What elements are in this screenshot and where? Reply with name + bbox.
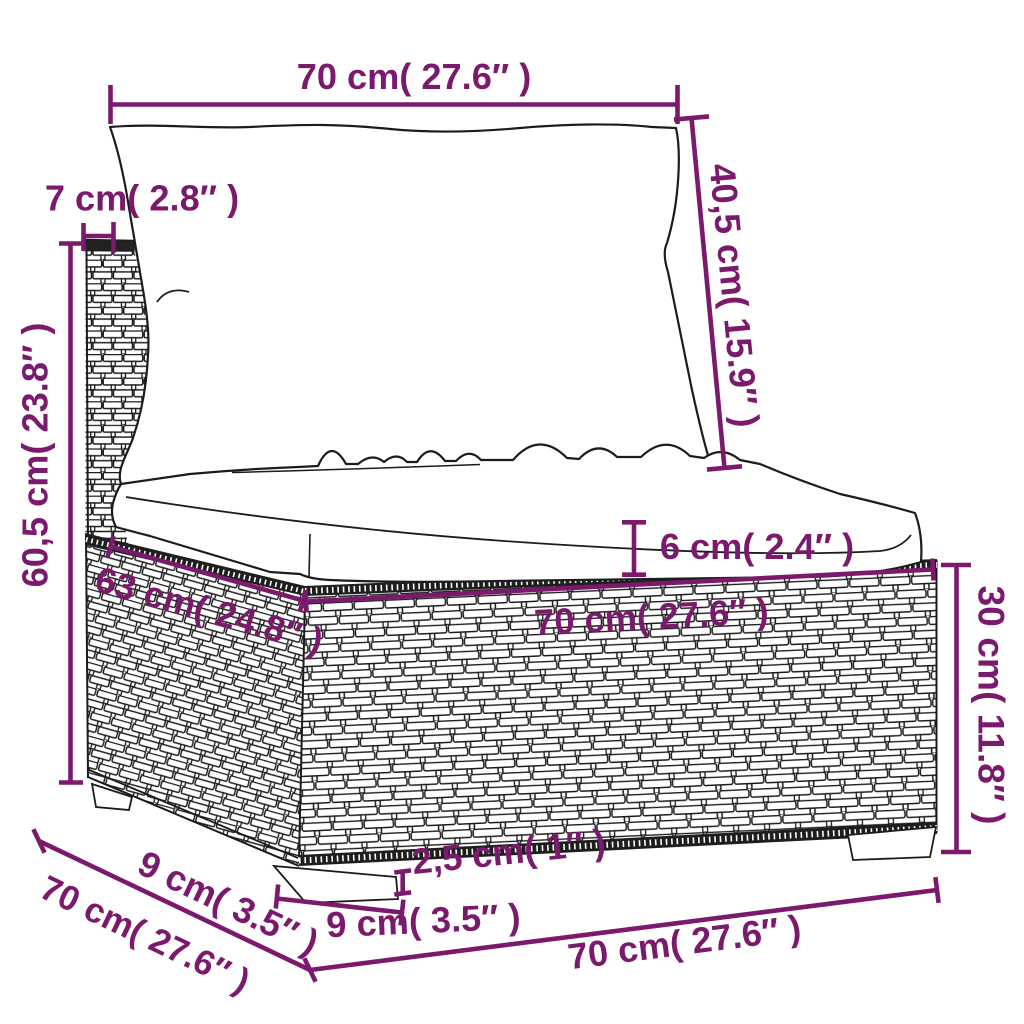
- svg-text:70 cm( 27.6″ ): 70 cm( 27.6″ ): [297, 56, 532, 97]
- svg-text:60,5 cm( 23.8″ ): 60,5 cm( 23.8″ ): [15, 323, 56, 588]
- svg-text:7 cm( 2.8″ ): 7 cm( 2.8″ ): [45, 178, 239, 219]
- svg-text:6 cm( 2.4″ ): 6 cm( 2.4″ ): [660, 526, 854, 567]
- svg-text:30 cm( 11.8″ ): 30 cm( 11.8″ ): [971, 585, 1013, 824]
